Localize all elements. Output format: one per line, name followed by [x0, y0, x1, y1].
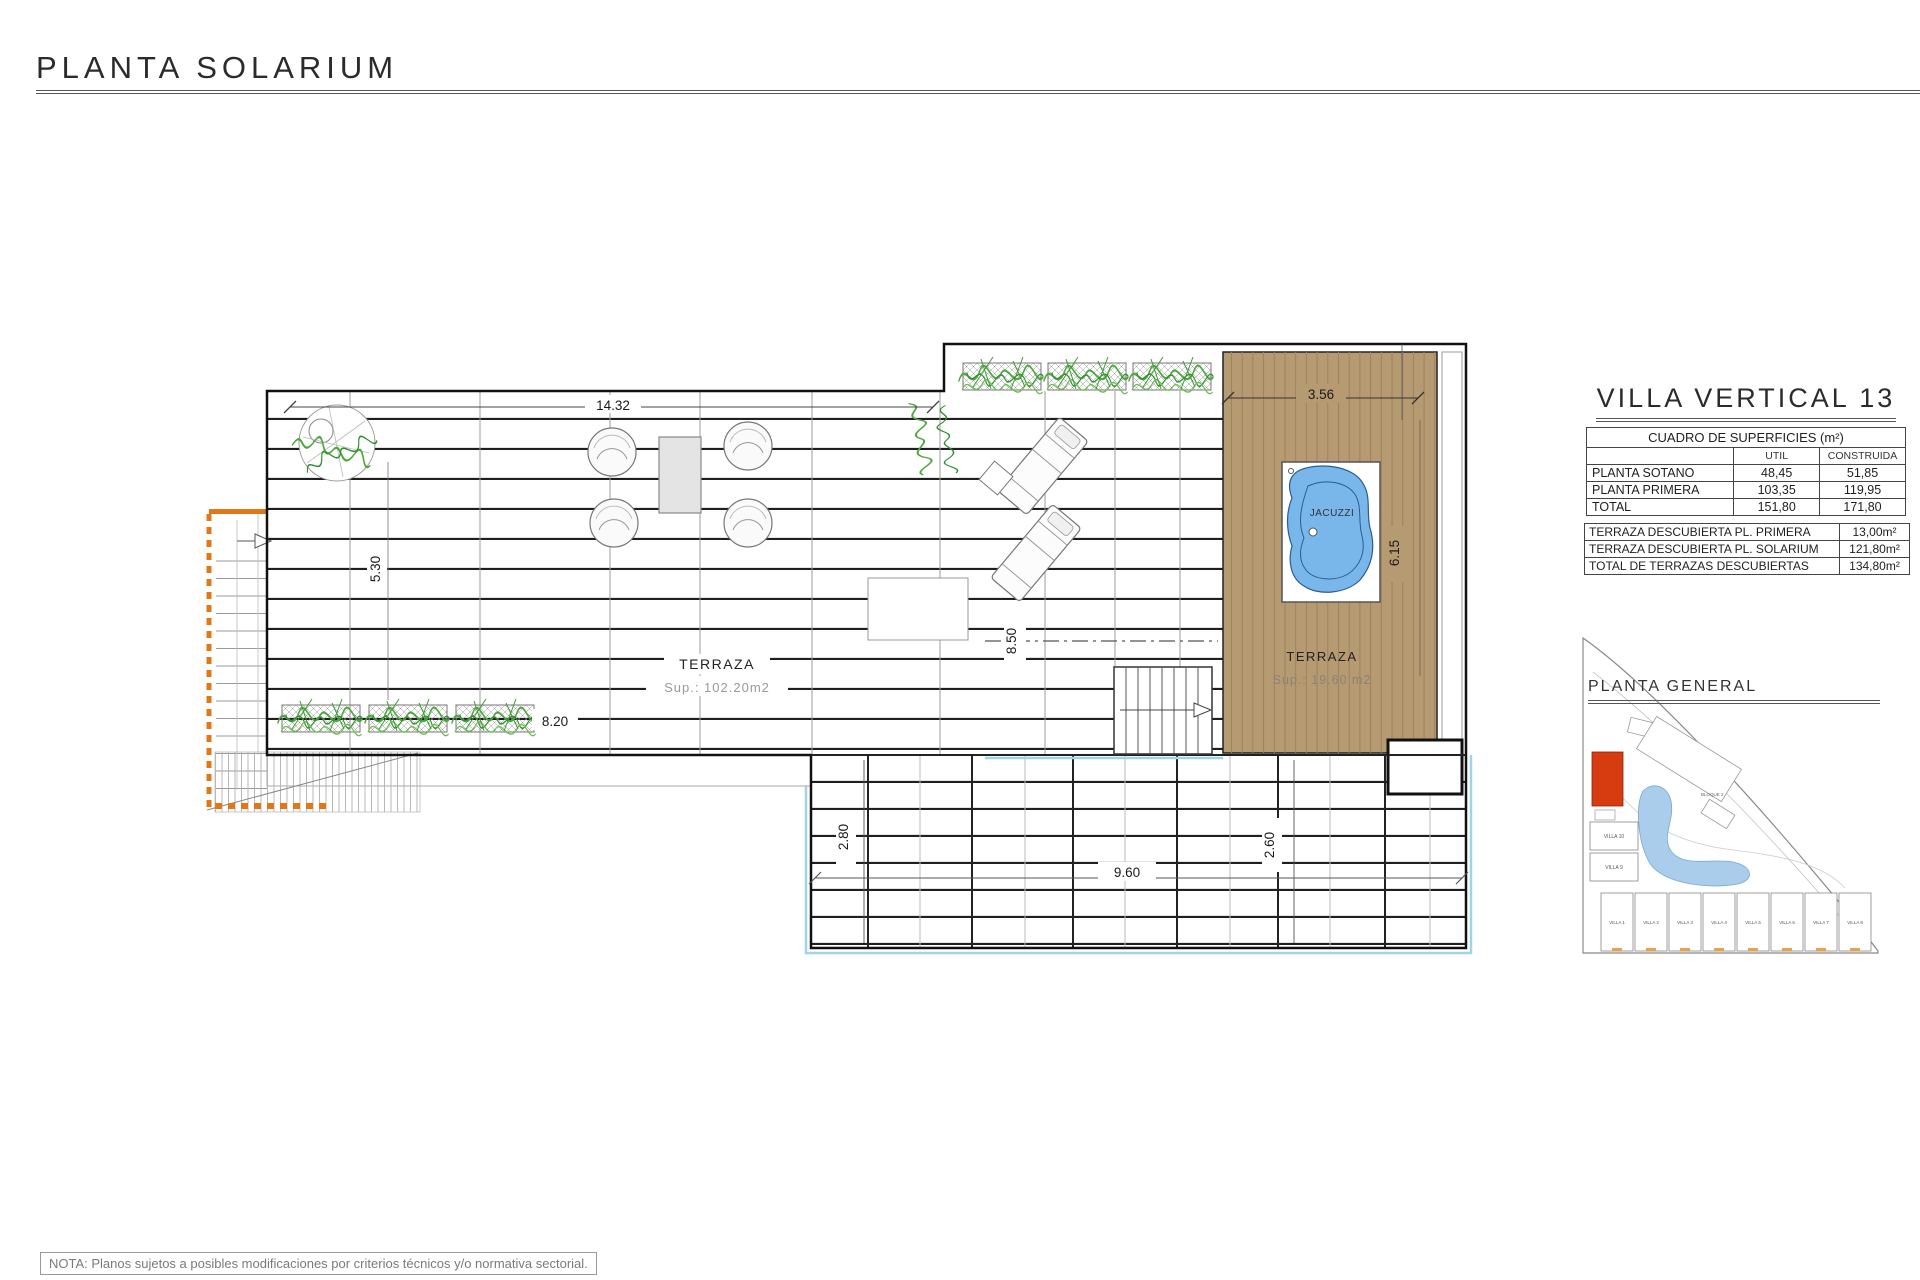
site-villa-label: VILLA 2 [1643, 920, 1659, 925]
svg-text:Sup.: 102.20m2: Sup.: 102.20m2 [664, 680, 770, 695]
svg-text:2.80: 2.80 [836, 824, 851, 850]
dim-planter-width: 8.20 [532, 709, 578, 730]
table-row: TOTAL DE TERRAZAS DESCUBIERTAS 134,80m² [1585, 558, 1910, 575]
lower-terrace-decking [811, 755, 1466, 948]
surfaces-table-title: CUADRO DE SUPERFICIES (m²) [1587, 428, 1906, 448]
center-staircase [1114, 667, 1212, 754]
site-highlight-villa [1592, 752, 1623, 806]
site-villa-label: VILLA 7 [1813, 920, 1829, 925]
villa-title: VILLA VERTICAL 13 [1596, 383, 1896, 419]
table-row: TOTAL 151,80 171,80 [1587, 499, 1906, 516]
svg-text:Sup.: 19.60 m2: Sup.: 19.60 m2 [1273, 673, 1372, 687]
planter-row-bottom [278, 699, 536, 737]
svg-text:2.60: 2.60 [1262, 832, 1277, 858]
site-villa-10-label: VILLA 10 [1604, 834, 1625, 840]
svg-text:6.15: 6.15 [1387, 540, 1402, 566]
stair-orange-top [209, 509, 267, 514]
siteplan-label: PLANTA GENERAL [1588, 678, 1880, 701]
floorplan-drawing: JACUZZI TERRAZA Sup.: 102.20m2 TERRAZA S… [0, 0, 1920, 1280]
site-villa-label: VILLA 6 [1779, 920, 1795, 925]
jacuzzi-label: JACUZZI [1310, 508, 1355, 519]
site-villa-label: VILLA 1 [1609, 920, 1625, 925]
surfaces-table: CUADRO DE SUPERFICIES (m²) UTIL CONSTRUI… [1586, 427, 1906, 516]
table-row: TERRAZA DESCUBIERTA PL. SOLARIUM 121,80m… [1585, 541, 1910, 558]
site-bloque-label: BLOQUE 2 [1701, 792, 1724, 797]
svg-text:TERRAZA: TERRAZA [1286, 649, 1357, 664]
floor-mat [868, 578, 968, 640]
svg-text:9.60: 9.60 [1114, 865, 1140, 880]
deck-notch [1388, 740, 1462, 794]
svg-text:8.50: 8.50 [1004, 628, 1019, 654]
col-util: UTIL [1734, 448, 1820, 465]
site-villa-label: VILLA 4 [1711, 920, 1727, 925]
svg-text:TERRAZA: TERRAZA [679, 656, 755, 672]
svg-text:5.30: 5.30 [368, 556, 383, 582]
jacuzzi: JACUZZI [1282, 462, 1380, 602]
table-row: TERRAZA DESCUBIERTA PL. PRIMERA 13,00m² [1585, 524, 1910, 541]
table [659, 437, 701, 513]
site-villa-9-label: VILLA 9 [1605, 865, 1623, 871]
note-box: NOTA: Planos sujetos a posibles modifica… [40, 1252, 597, 1275]
col-construida: CONSTRUIDA [1820, 448, 1906, 465]
terraces-table: TERRAZA DESCUBIERTA PL. PRIMERA 13,00m² … [1584, 523, 1910, 575]
svg-text:3.56: 3.56 [1308, 387, 1334, 402]
site-villa-label: VILLA 8 [1847, 920, 1863, 925]
table-row: PLANTA SOTANO 48,45 51,85 [1587, 465, 1906, 482]
planter-row-top [959, 357, 1213, 395]
table-row: PLANTA PRIMERA 103,35 119,95 [1587, 482, 1906, 499]
site-villa-label: VILLA 3 [1677, 920, 1693, 925]
site-villa-label: VILLA 5 [1745, 920, 1761, 925]
page-title: PLANTA SOLARIUM [36, 50, 1920, 91]
svg-text:14.32: 14.32 [596, 398, 630, 413]
hatched-landing [207, 752, 811, 812]
right-side-strip [1442, 352, 1462, 742]
svg-text:8.20: 8.20 [542, 714, 568, 729]
